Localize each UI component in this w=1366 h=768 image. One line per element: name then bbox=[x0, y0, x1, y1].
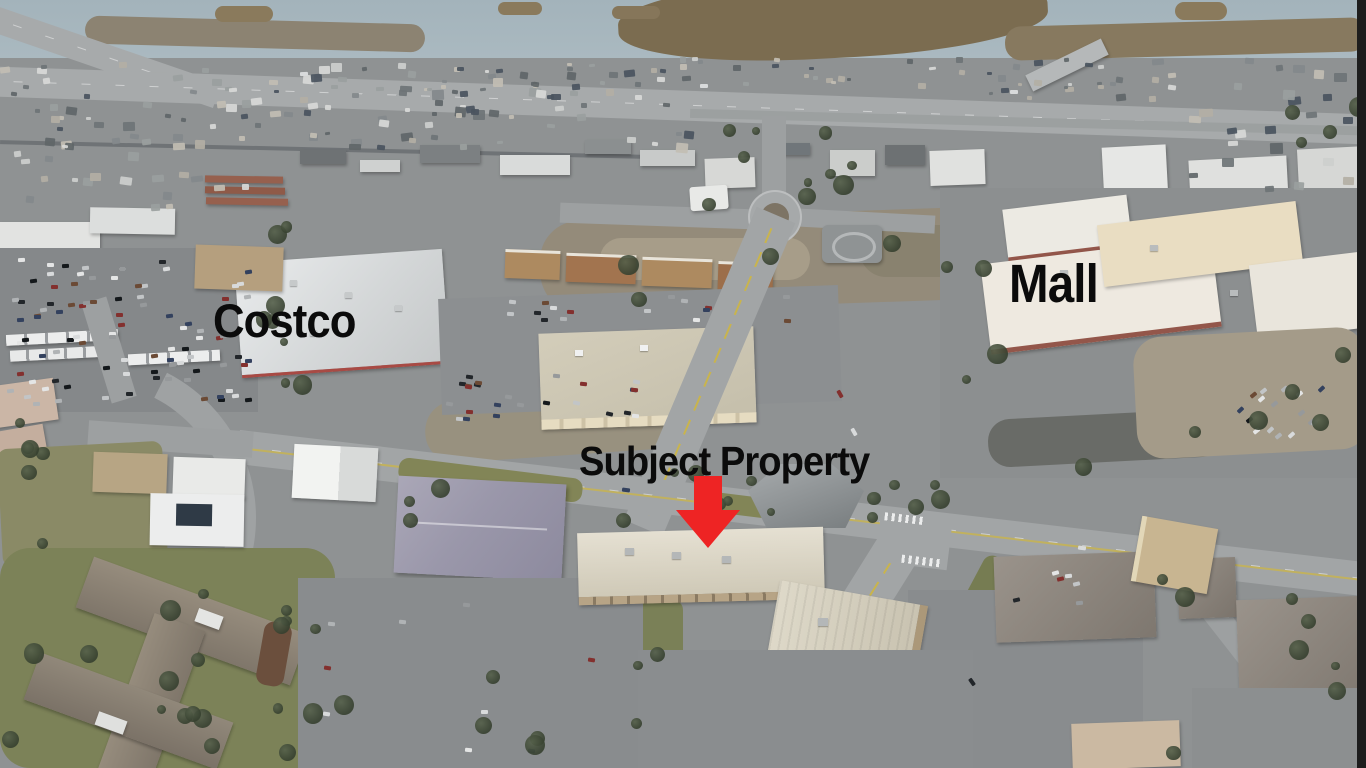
aerial-photo: Costco Mall Subject Property bbox=[0, 0, 1366, 768]
letterbox-bar bbox=[1357, 0, 1366, 768]
subject-property-label: Subject Property bbox=[579, 441, 869, 482]
costco-label: Costco bbox=[213, 297, 356, 344]
arrow-head bbox=[676, 510, 740, 548]
subject-property-arrow-icon bbox=[676, 476, 740, 548]
mall-label: Mall bbox=[1009, 257, 1098, 311]
annotation-layer: Costco Mall Subject Property bbox=[0, 0, 1366, 768]
